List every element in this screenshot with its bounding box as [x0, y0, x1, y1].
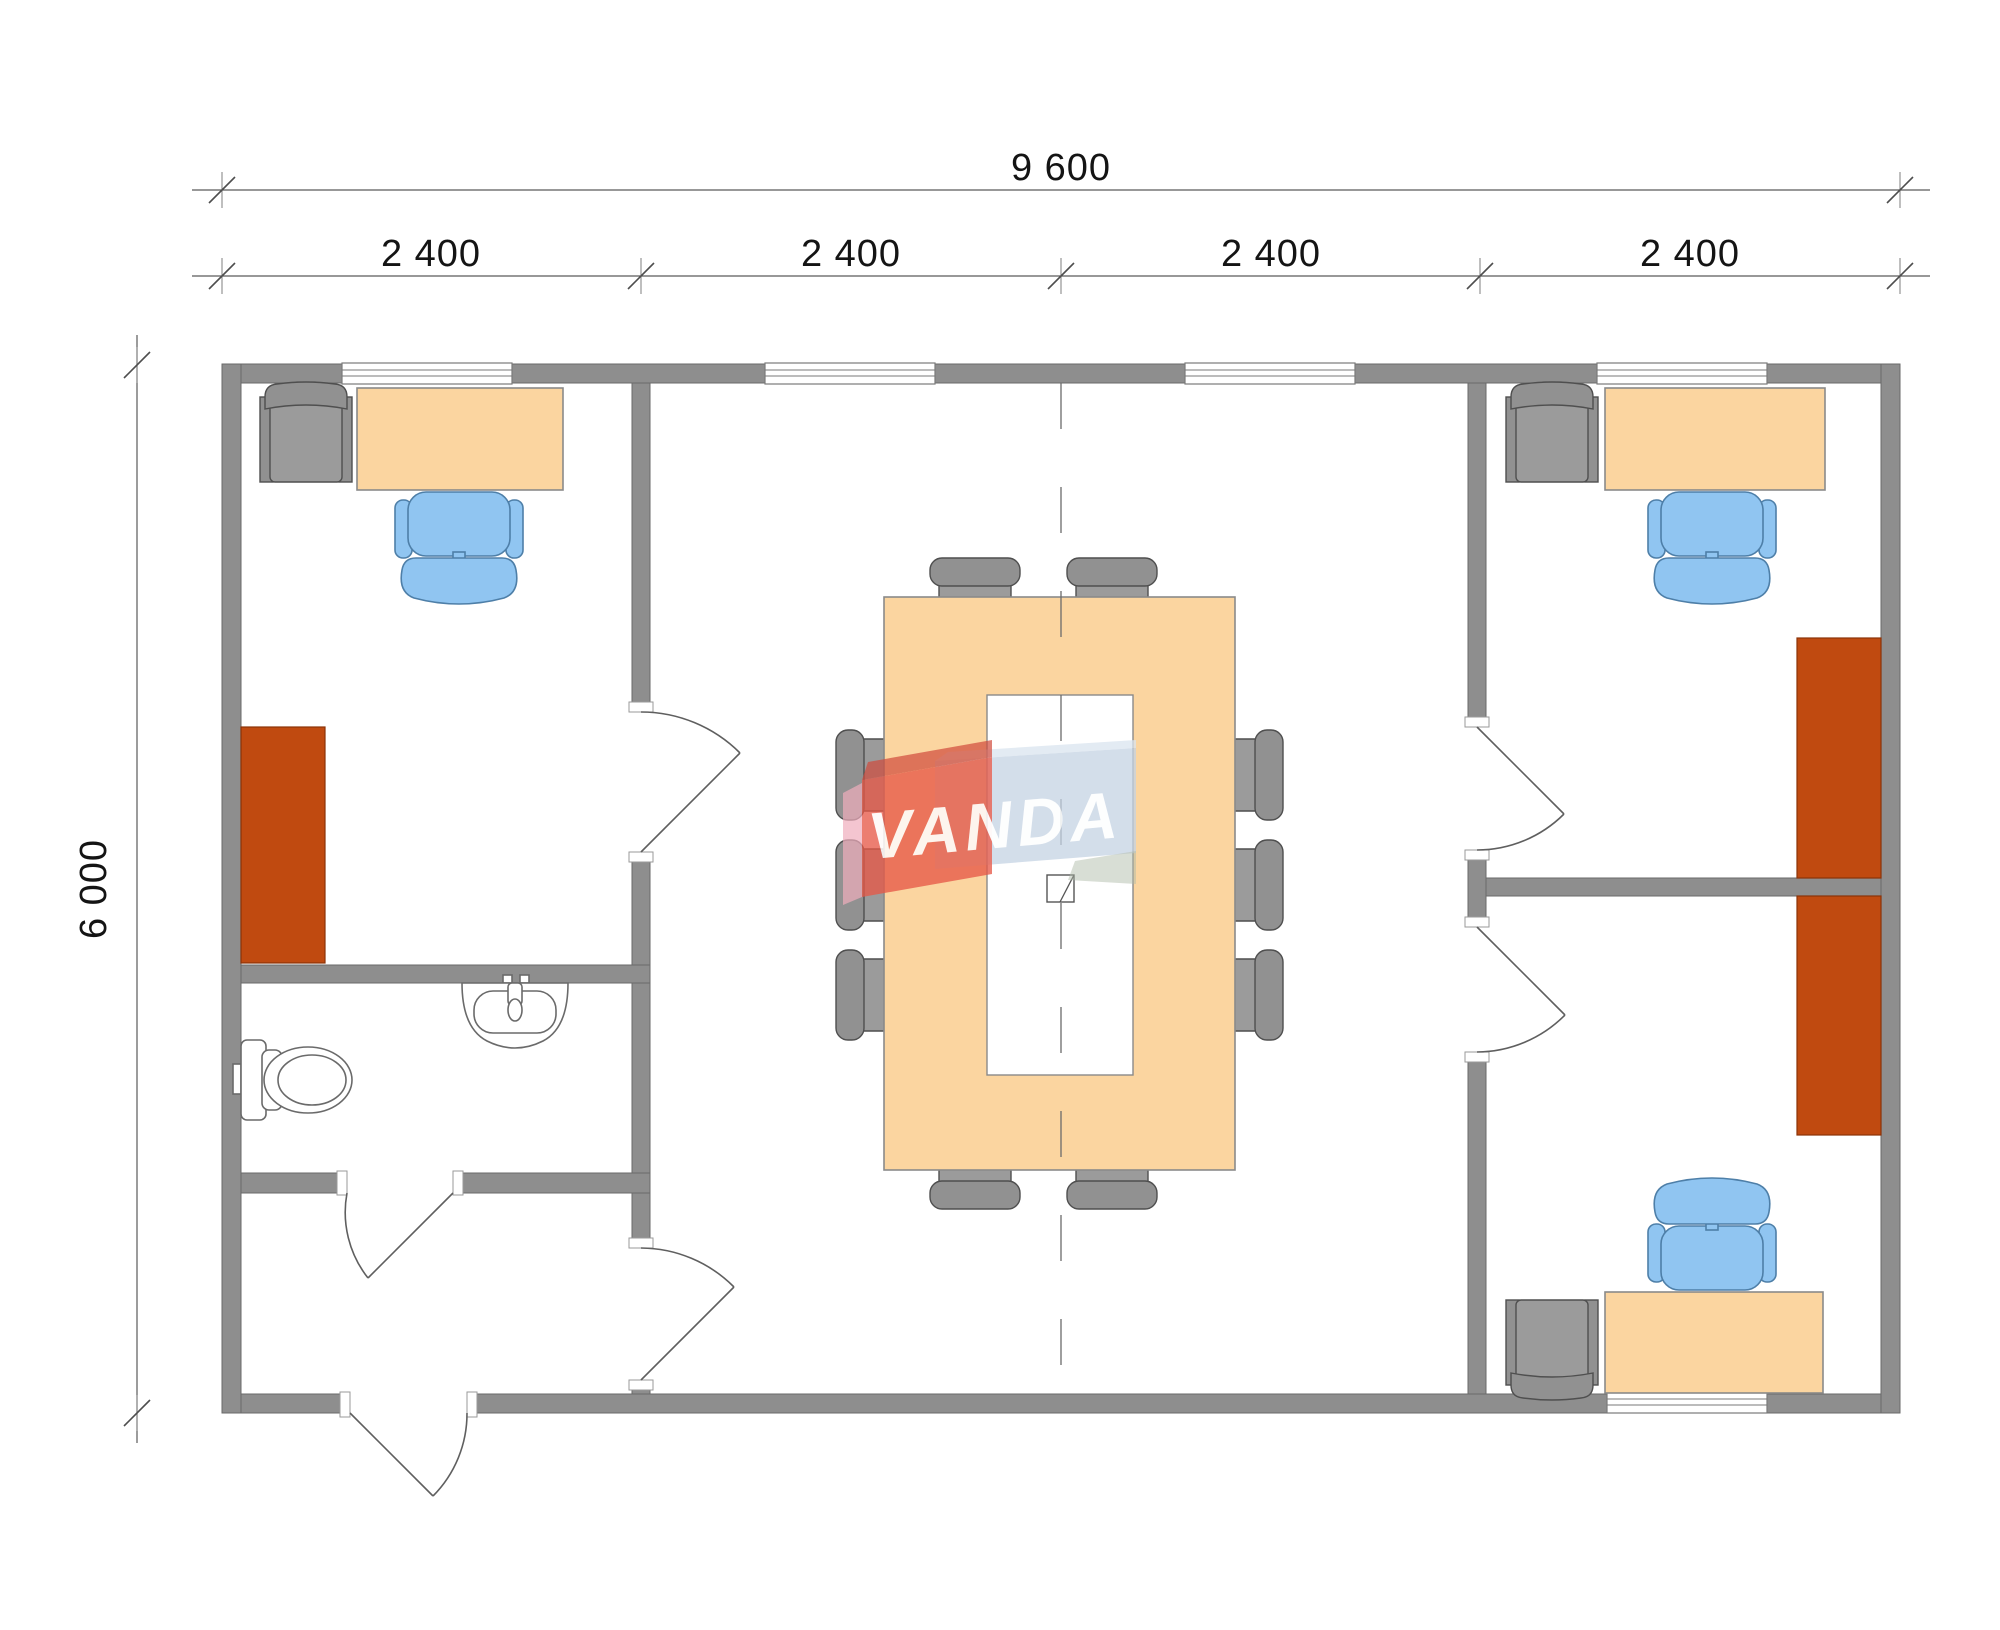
- dimension-line-height: 6 000: [73, 335, 150, 1443]
- desk: [1605, 388, 1825, 490]
- door-entrance: [340, 1392, 477, 1496]
- wall-bathroom-top: [241, 965, 650, 983]
- room-office-top-right: [1506, 382, 1881, 878]
- room-office-bottom-right: [1506, 896, 1881, 1400]
- window-office-top-right: [1597, 363, 1767, 384]
- door-office-top-left: [629, 702, 740, 862]
- room-bathroom: [233, 975, 568, 1120]
- toilet: [233, 1040, 352, 1120]
- window-meeting-right: [1185, 363, 1355, 384]
- floor-plan-drawing: 9 600 2 400 2 400 2 400 2 400 6 000: [0, 0, 2000, 1630]
- cabinet: [1797, 638, 1881, 878]
- door-office-top-right: [1465, 717, 1564, 860]
- sink: [462, 975, 568, 1048]
- wall-right-offices-divider: [1486, 878, 1881, 896]
- cabinet: [241, 727, 325, 963]
- guest-chair: [1506, 1300, 1598, 1400]
- dimension-line-modules: 2 400 2 400 2 400 2 400: [192, 233, 1930, 294]
- dim-label-module-2: 2 400: [801, 233, 901, 275]
- window-office-top-left: [342, 363, 512, 384]
- desk: [357, 388, 563, 490]
- guest-chair: [1506, 382, 1598, 482]
- wall-interior-right-module: [1468, 383, 1486, 1394]
- watermark-pink-stripe: [843, 783, 862, 905]
- office-chair-blue: [1648, 1178, 1776, 1290]
- door-entry-to-meeting: [629, 1238, 734, 1390]
- floor-plan-page: 9 600 2 400 2 400 2 400 2 400 6 000: [0, 0, 2000, 1630]
- dim-label-height: 6 000: [73, 839, 115, 939]
- desk: [1605, 1292, 1823, 1393]
- wall-exterior-left: [222, 364, 241, 1413]
- wall-exterior-right: [1881, 364, 1900, 1413]
- door-office-bottom-right: [1465, 917, 1565, 1062]
- office-chair-blue: [1648, 492, 1776, 604]
- guest-chair: [260, 382, 352, 482]
- cabinet: [1797, 896, 1881, 1135]
- door-bathroom: [337, 1171, 463, 1278]
- dim-label-module-4: 2 400: [1640, 233, 1740, 275]
- office-chair-blue: [395, 492, 523, 604]
- dim-label-total-width: 9 600: [1011, 147, 1111, 189]
- window-office-bottom-right: [1607, 1392, 1767, 1413]
- window-meeting-left: [765, 363, 935, 384]
- dim-label-module-3: 2 400: [1221, 233, 1321, 275]
- dim-label-module-1: 2 400: [381, 233, 481, 275]
- dimension-line-total-width: 9 600: [192, 147, 1930, 208]
- room-office-top-left: [241, 382, 563, 963]
